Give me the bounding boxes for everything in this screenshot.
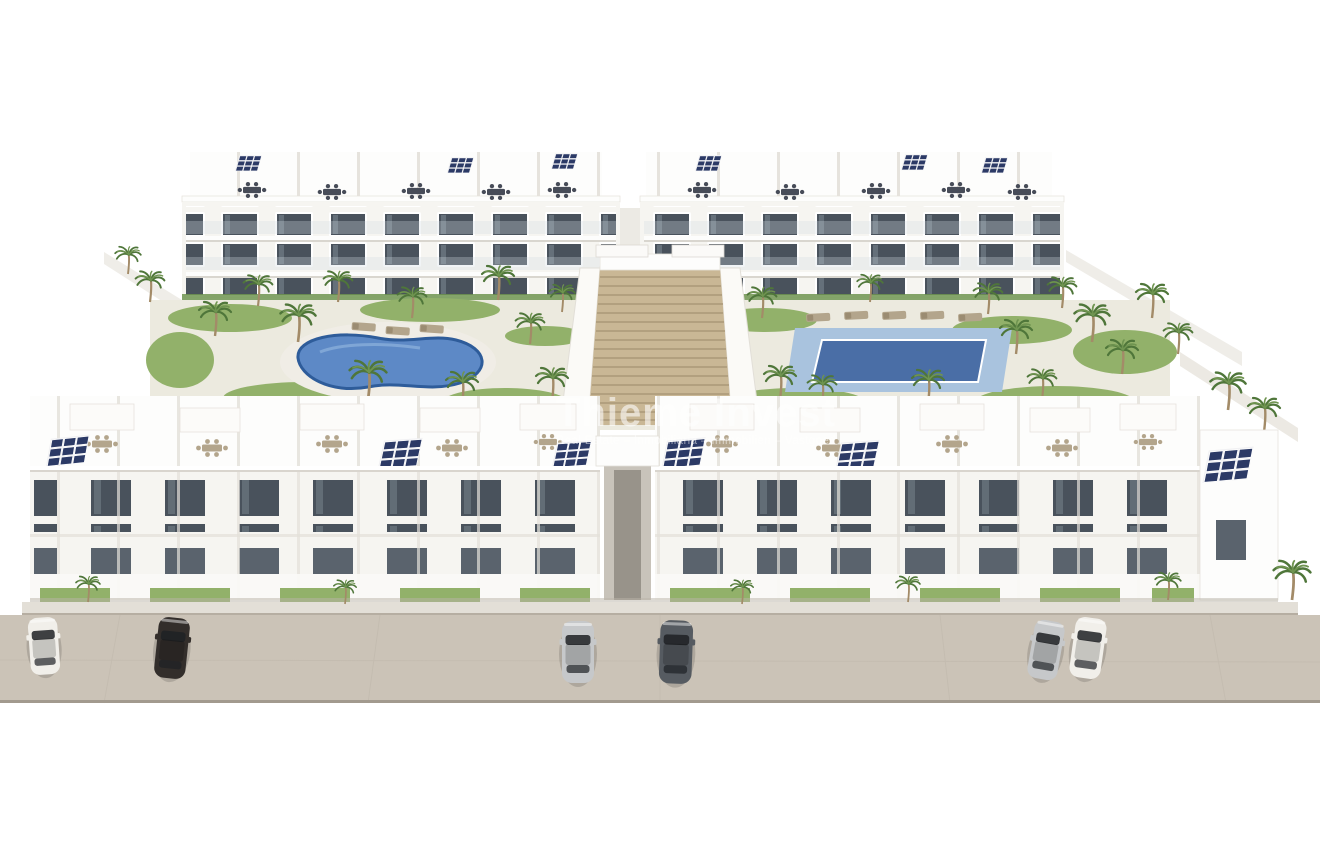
right-end-tower [1200,430,1278,600]
car-dark-gray [655,620,696,689]
street [0,602,1320,703]
building-shadow [30,598,1278,602]
car-silver [559,621,597,687]
front-center-passage [596,436,659,600]
architectural-rendering: Thieme Invest Real Estate – Inmobiliaria… [0,0,1320,859]
scene-svg [0,0,1320,859]
front-building-right [655,396,1200,602]
road-edge [0,700,1320,703]
front-building-left [30,396,600,602]
